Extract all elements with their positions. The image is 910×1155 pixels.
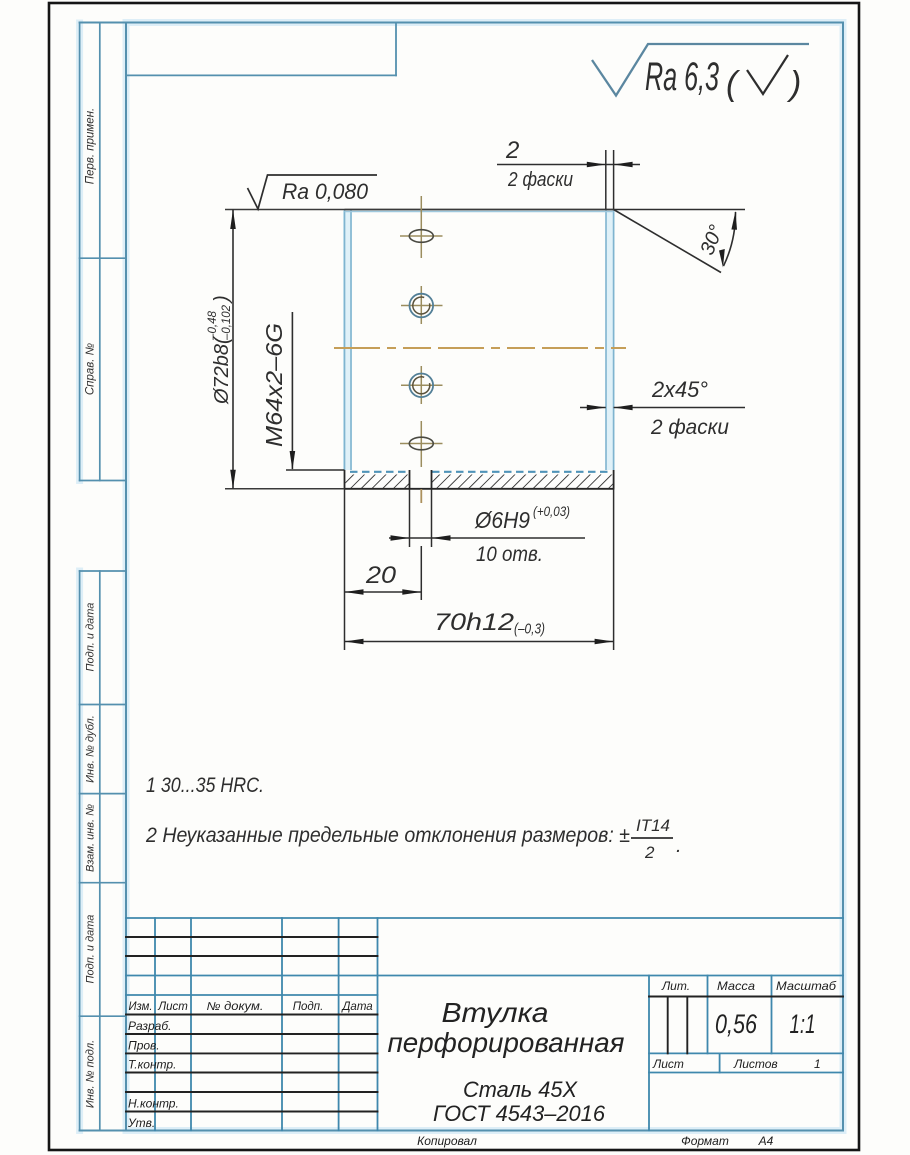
svg-text:А4: А4 [758,1134,774,1148]
svg-text:2 фаски: 2 фаски [507,169,573,191]
svg-text:Листов: Листов [733,1057,778,1071]
svg-text:IT14: IT14 [636,816,670,835]
svg-text:Масштаб: Масштаб [776,979,837,993]
svg-text:Формат: Формат [681,1134,729,1148]
svg-text:–0,48: –0,48 [205,311,219,341]
svg-text:Масса: Масса [717,979,755,993]
svg-text:Взам. инв. №: Взам. инв. № [85,804,97,872]
svg-text:Подп. и дата: Подп. и дата [85,603,97,672]
svg-text:Лист: Лист [157,1001,188,1013]
svg-text:2 Неуказанные предельные откл: 2 Неуказанные предельные отклонения разм… [145,824,630,847]
svg-text:Дата: Дата [340,1001,372,1013]
svg-text:2: 2 [644,843,655,862]
svg-text:Ø72b8(: Ø72b8( [211,335,233,405]
svg-text:Подп. и дата: Подп. и дата [85,915,97,984]
svg-text:перфорированная: перфорированная [388,1027,625,1058]
svg-text:Подп.: Подп. [293,1001,324,1013]
svg-text:.: . [676,835,682,857]
svg-text:М64х2–6G: М64х2–6G [261,323,287,447]
svg-text:2 фаски: 2 фаски [650,416,729,439]
svg-text:Ra 0,080: Ra 0,080 [282,179,369,204]
svg-text:Перв. примен.: Перв. примен. [85,108,97,184]
svg-text:Втулка: Втулка [442,997,549,1028]
svg-text:1:1: 1:1 [790,1009,816,1039]
svg-text:70h12: 70h12 [434,609,514,636]
svg-text:Лит.: Лит. [661,979,690,993]
svg-text:–0,102: –0,102 [219,305,233,341]
svg-text:Т.контр.: Т.контр. [128,1058,176,1072]
svg-text:Пров.: Пров. [128,1039,160,1053]
svg-text:0,56: 0,56 [715,1009,758,1039]
svg-text:(–0,3): (–0,3) [514,621,545,638]
svg-text:ГОСТ 4543–2016: ГОСТ 4543–2016 [433,1101,606,1126]
svg-text:Копировал: Копировал [417,1134,477,1148]
svg-text:1: 1 [814,1057,821,1071]
svg-text:): ) [211,295,233,304]
svg-text:Ø6Н9: Ø6Н9 [474,507,530,533]
svg-text:1 30...35 HRC.: 1 30...35 HRC. [146,774,264,797]
svg-text:20: 20 [365,562,397,589]
svg-text:Справ. №: Справ. № [85,342,97,395]
svg-text:Инв. № дубл.: Инв. № дубл. [85,715,97,783]
svg-text:Н.контр.: Н.контр. [128,1097,179,1111]
svg-text:Сталь 45Х: Сталь 45Х [463,1077,578,1102]
svg-text:№ докум.: № докум. [207,1001,264,1013]
svg-text:2х45°: 2х45° [651,377,708,402]
svg-text:10 отв.: 10 отв. [476,543,543,566]
svg-text:2: 2 [505,137,519,164]
svg-text:Утв.: Утв. [127,1116,155,1130]
svg-text:Инв. № подл.: Инв. № подл. [85,1040,97,1108]
svg-text:Лист: Лист [652,1057,684,1071]
svg-text:(+0,03): (+0,03) [533,503,570,519]
svg-text:Изм.: Изм. [129,1001,153,1013]
svg-text:Разраб.: Разраб. [128,1019,171,1033]
svg-text:Ra 6,3: Ra 6,3 [645,55,719,99]
